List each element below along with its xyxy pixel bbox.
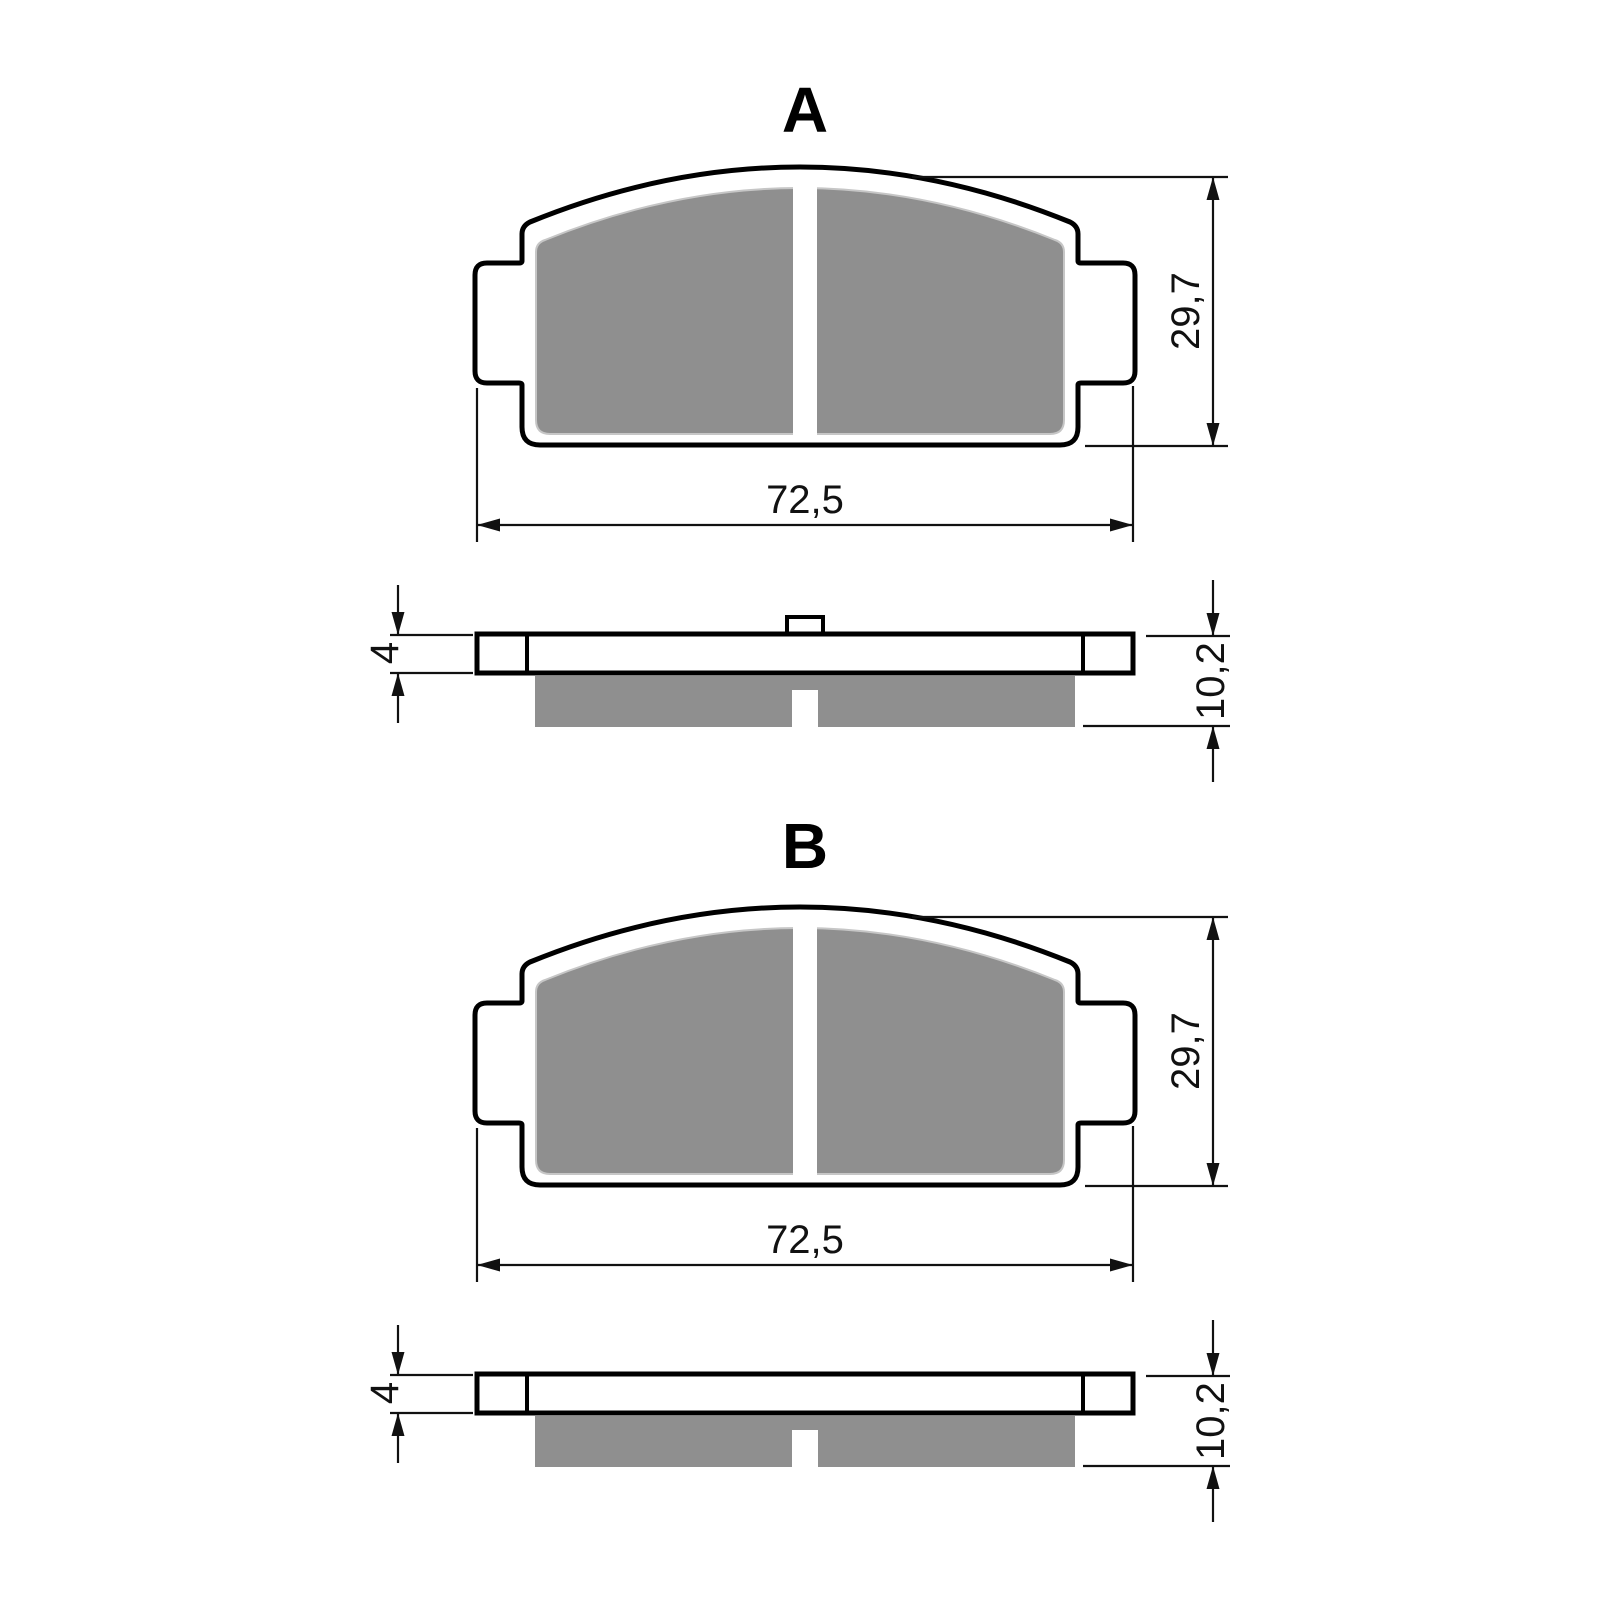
width-value-b: 72,5 xyxy=(766,1218,844,1262)
diagram-a: A 72,5 29,7 4 10,2 xyxy=(363,74,1233,782)
plate-thickness-value-a: 4 xyxy=(363,642,407,664)
total-thickness-value-a: 10,2 xyxy=(1189,642,1233,720)
height-value-b: 29,7 xyxy=(1164,1012,1208,1090)
view-label-a: A xyxy=(782,74,828,146)
width-value-a: 72,5 xyxy=(766,478,844,522)
height-value-a: 29,7 xyxy=(1164,272,1208,350)
pad-front-view-b xyxy=(475,890,1135,1185)
total-thickness-value-b: 10,2 xyxy=(1189,1382,1233,1460)
view-label-b: B xyxy=(782,810,828,882)
pad-side-view-b xyxy=(477,1374,1133,1468)
diagram-b: B 72,5 29,7 4 10,2 xyxy=(363,810,1233,1522)
pad-side-view-a xyxy=(477,634,1133,728)
technical-drawing-canvas: A 72,5 29,7 4 10,2 B 72,5 29,7 4 10,2 xyxy=(0,0,1600,1600)
plate-thickness-value-b: 4 xyxy=(363,1382,407,1404)
brake-pad-drawing: A 72,5 29,7 4 10,2 B 72,5 29,7 4 10,2 xyxy=(0,0,1600,1600)
pad-front-view-a xyxy=(475,150,1135,445)
